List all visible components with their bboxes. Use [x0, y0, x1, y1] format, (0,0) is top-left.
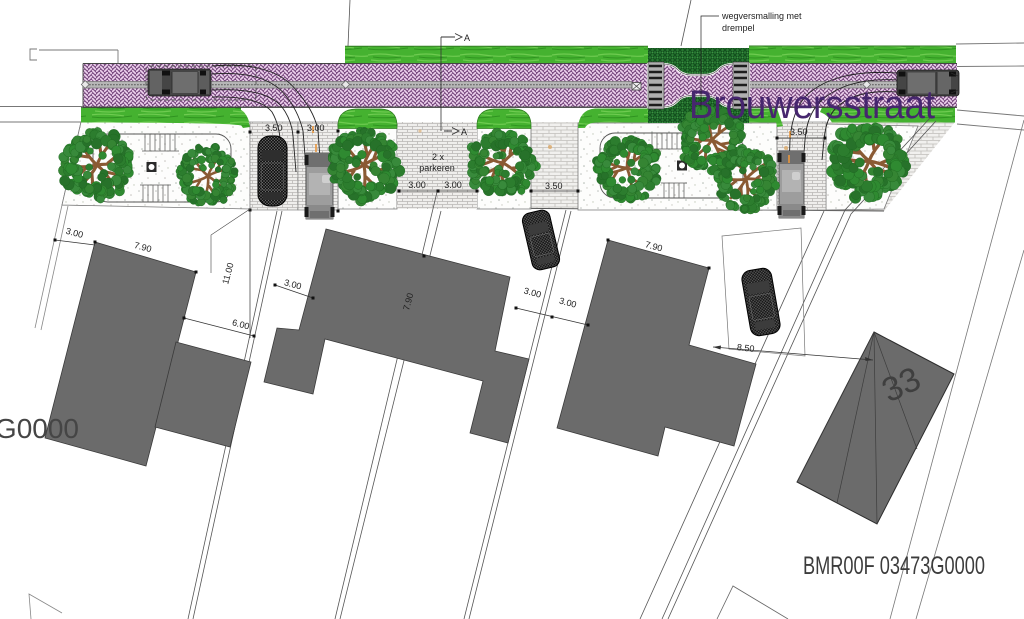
- svg-text:wegversmalling met: wegversmalling met: [721, 11, 802, 21]
- svg-text:2 x: 2 x: [432, 152, 445, 162]
- svg-text:Brouwersstraat: Brouwersstraat: [689, 83, 935, 127]
- svg-text:3.00: 3.00: [408, 180, 426, 190]
- svg-text:drempel: drempel: [722, 23, 755, 33]
- svg-text:3.00: 3.00: [307, 123, 325, 133]
- svg-text:parkeren: parkeren: [419, 163, 455, 173]
- svg-text:3.50: 3.50: [265, 123, 283, 133]
- svg-text:8.50: 8.50: [736, 342, 754, 354]
- svg-text:03473G0000: 03473G0000: [0, 413, 79, 444]
- svg-text:BMR00F 03473G0000: BMR00F 03473G0000: [803, 552, 985, 580]
- svg-text:A: A: [464, 33, 470, 43]
- svg-text:3.50: 3.50: [545, 181, 563, 191]
- svg-text:A: A: [461, 127, 467, 137]
- svg-text:3.00: 3.00: [444, 180, 462, 190]
- svg-text:3.50: 3.50: [790, 127, 808, 137]
